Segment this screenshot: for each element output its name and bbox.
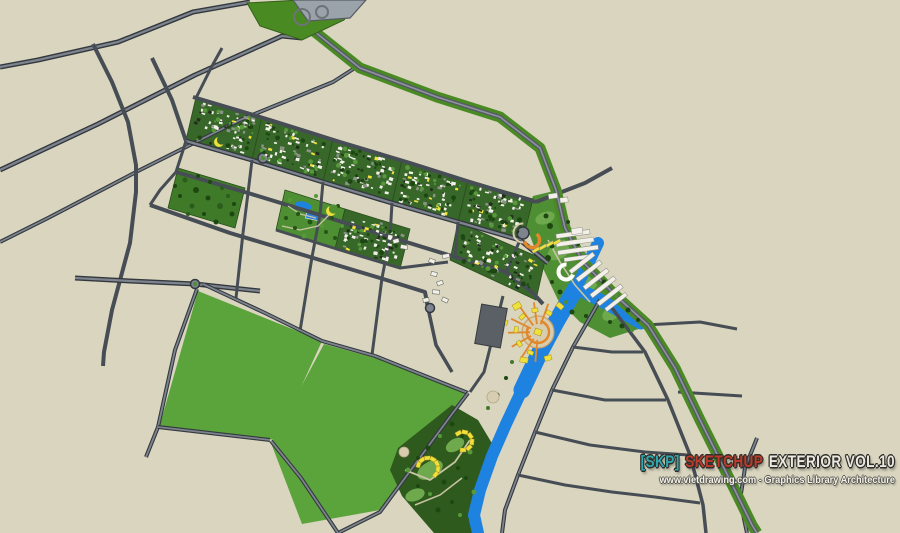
watermark-url: www.vietdrawing.com - Graphics Library A… <box>609 474 895 486</box>
watermark-brand-sketchup: SKETCHUP <box>685 452 763 471</box>
watermark-brand-skp: [SKP] <box>641 452 680 471</box>
watermark: [SKP]SKETCHUPEXTERIOR VOL.10 www.vietdra… <box>570 452 895 486</box>
watermark-title-line: [SKP]SKETCHUPEXTERIOR VOL.10 <box>635 452 895 472</box>
master-plan-render: [SKP]SKETCHUPEXTERIOR VOL.10 www.vietdra… <box>0 0 900 533</box>
watermark-volume: EXTERIOR VOL.10 <box>769 452 895 471</box>
